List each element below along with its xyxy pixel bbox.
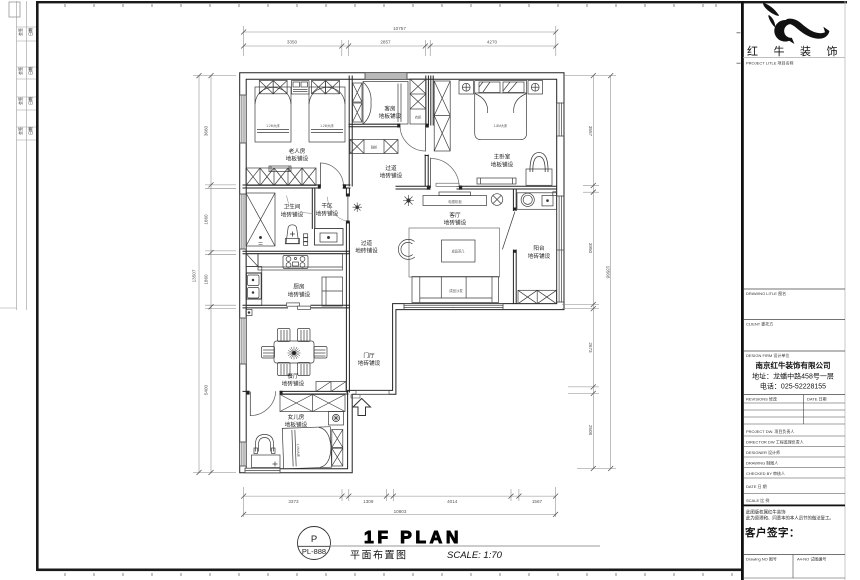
svg-text:1.2M大床: 1.2M大床 [320,123,334,128]
svg-text:阳台: 阳台 [533,244,545,252]
svg-text:1F PLAN: 1F PLAN [364,527,462,547]
svg-text:餐厅: 餐厅 [287,372,299,380]
svg-text:PROJECT LITLE 项目名称: PROJECT LITLE 项目名称 [746,60,794,66]
svg-text:日期: 日期 [27,28,33,36]
svg-text:会签: 会签 [17,67,23,75]
svg-text:5400: 5400 [204,384,209,395]
svg-text:1309: 1309 [363,499,374,504]
svg-text:2857: 2857 [380,40,391,45]
svg-text:鞋柜: 鞋柜 [371,145,378,150]
svg-text:4014: 4014 [447,499,458,504]
svg-text:10803: 10803 [394,509,407,514]
svg-text:13568: 13568 [606,266,611,279]
svg-text:此为原理和、同意本的本人员节的做法复工。: 此为原理和、同意本的本人员节的做法复工。 [746,515,834,522]
svg-text:1860: 1860 [204,274,209,285]
svg-text:1.8M大床: 1.8M大床 [494,123,508,128]
svg-text:地砖铺设: 地砖铺设 [528,252,551,260]
svg-text:主卧室: 主卧室 [494,153,511,161]
svg-text:卫生间: 卫生间 [284,203,301,211]
svg-text:DIRECTOR DW 工程监理负责人: DIRECTOR DW 工程监理负责人 [746,439,804,445]
svg-text:PL-888: PL-888 [302,547,326,556]
svg-text:3373: 3373 [288,499,299,504]
svg-text:客户签字：: 客户签字： [744,526,800,539]
svg-text:10757: 10757 [393,26,406,31]
svg-text:老人房: 老人房 [289,147,306,155]
svg-text:日期: 日期 [27,97,33,105]
svg-text:DATE 日期: DATE 日期 [807,396,826,402]
svg-text:女儿房: 女儿房 [288,413,305,421]
svg-text:3950: 3950 [588,243,593,254]
svg-text:地板铺设: 地板铺设 [285,421,308,429]
svg-text:1660: 1660 [204,214,209,225]
svg-text:地砖铺设: 地砖铺设 [444,219,467,227]
svg-text:地砖铺设: 地砖铺设 [282,380,305,388]
svg-text:地址：龙蟠中路458号一层: 地址：龙蟠中路458号一层 [752,372,834,381]
svg-text:此图版权属红牛装饰: 此图版权属红牛装饰 [746,509,786,516]
svg-text:地砖铺设: 地砖铺设 [316,210,339,218]
svg-text:地板铺设: 地板铺设 [491,161,514,169]
svg-text:日期: 日期 [27,127,33,135]
svg-text:REVISIONS 修改: REVISIONS 修改 [746,396,777,402]
svg-text:PROJECT DW. 项目负责人: PROJECT DW. 项目负责人 [746,428,794,434]
svg-text:DATE 日 期: DATE 日 期 [746,483,767,489]
svg-text:3557: 3557 [588,126,593,137]
svg-text:地砖铺设: 地砖铺设 [288,291,311,299]
svg-text:日期: 日期 [27,67,33,75]
svg-text:厨房: 厨房 [293,283,305,291]
svg-text:会签: 会签 [17,28,23,36]
svg-text:SCALE: 1:70: SCALE: 1:70 [447,550,503,561]
svg-text:成品沙发: 成品沙发 [449,288,463,293]
svg-text:成品茶几: 成品茶几 [452,249,466,254]
svg-text:电视机柜: 电视机柜 [448,199,462,204]
svg-text:门厅: 门厅 [363,352,375,360]
svg-text:干区: 干区 [321,203,333,210]
svg-text:A4-NO 试图编号: A4-NO 试图编号 [797,556,826,562]
svg-text:SCALE 比 例: SCALE 比 例 [746,497,769,503]
svg-text:地板铺设: 地板铺设 [379,112,402,120]
svg-text:13507: 13507 [192,269,197,282]
svg-text:2673: 2673 [588,342,593,353]
svg-text:过道: 过道 [385,164,397,172]
svg-text:4270: 4270 [487,40,498,45]
svg-text:南京红牛装饰有限公司: 南京红牛装饰有限公司 [756,360,831,370]
svg-text:红牛装饰: 红牛装饰 [747,44,853,58]
svg-text:地砖铺设: 地砖铺设 [380,172,403,180]
svg-text:CHECKED BY 审核人: CHECKED BY 审核人 [746,470,785,476]
svg-text:DESIGN FIRM 设计单位: DESIGN FIRM 设计单位 [746,352,789,358]
svg-text:平面布置图: 平面布置图 [350,550,408,562]
svg-text:地砖铺设: 地砖铺设 [281,211,304,219]
svg-text:DRAWING LITLE 图名: DRAWING LITLE 图名 [746,290,786,296]
svg-text:1567: 1567 [532,499,543,504]
svg-text:2508: 2508 [588,425,593,436]
svg-text:会签: 会签 [17,97,23,105]
svg-text:CLIENT 委托方: CLIENT 委托方 [746,321,773,327]
svg-text:DRAWING 制图人: DRAWING 制图人 [746,460,778,466]
svg-text:Drawing NO 图号: Drawing NO 图号 [746,556,777,562]
svg-text:地砖铺设: 地砖铺设 [358,359,381,367]
svg-text:P: P [311,534,317,545]
svg-text:地砖铺设: 地砖铺设 [355,247,378,255]
svg-text:1.5M大床: 1.5M大床 [296,443,301,457]
svg-text:DESIGNER 设计师: DESIGNER 设计师 [746,449,780,455]
svg-text:1.2M大床: 1.2M大床 [266,123,280,128]
svg-text:电话：025-52228155: 电话：025-52228155 [760,382,826,391]
svg-text:3350: 3350 [287,40,298,45]
svg-text:地板铺设: 地板铺设 [286,155,309,163]
svg-text:过道: 过道 [361,239,373,247]
svg-text:客房: 客房 [384,105,396,113]
svg-text:客厅: 客厅 [449,211,461,219]
svg-text:3660: 3660 [204,125,209,136]
svg-text:会签: 会签 [17,127,23,135]
svg-text:衣柜: 衣柜 [415,115,422,120]
